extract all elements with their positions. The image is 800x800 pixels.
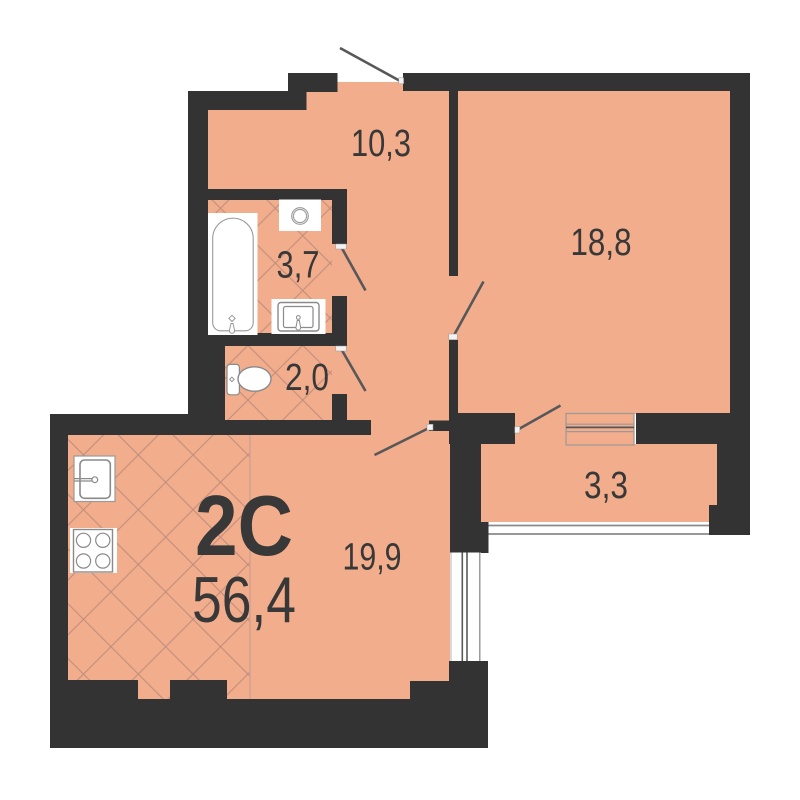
svg-text:19,9: 19,9 <box>343 537 402 579</box>
svg-text:3,3: 3,3 <box>584 465 628 507</box>
svg-text:2C: 2C <box>195 479 293 574</box>
svg-text:2,0: 2,0 <box>285 357 329 399</box>
svg-text:18,8: 18,8 <box>571 222 632 264</box>
svg-text:56,4: 56,4 <box>192 563 296 636</box>
svg-text:10,3: 10,3 <box>351 123 411 165</box>
svg-text:3,7: 3,7 <box>277 245 320 287</box>
